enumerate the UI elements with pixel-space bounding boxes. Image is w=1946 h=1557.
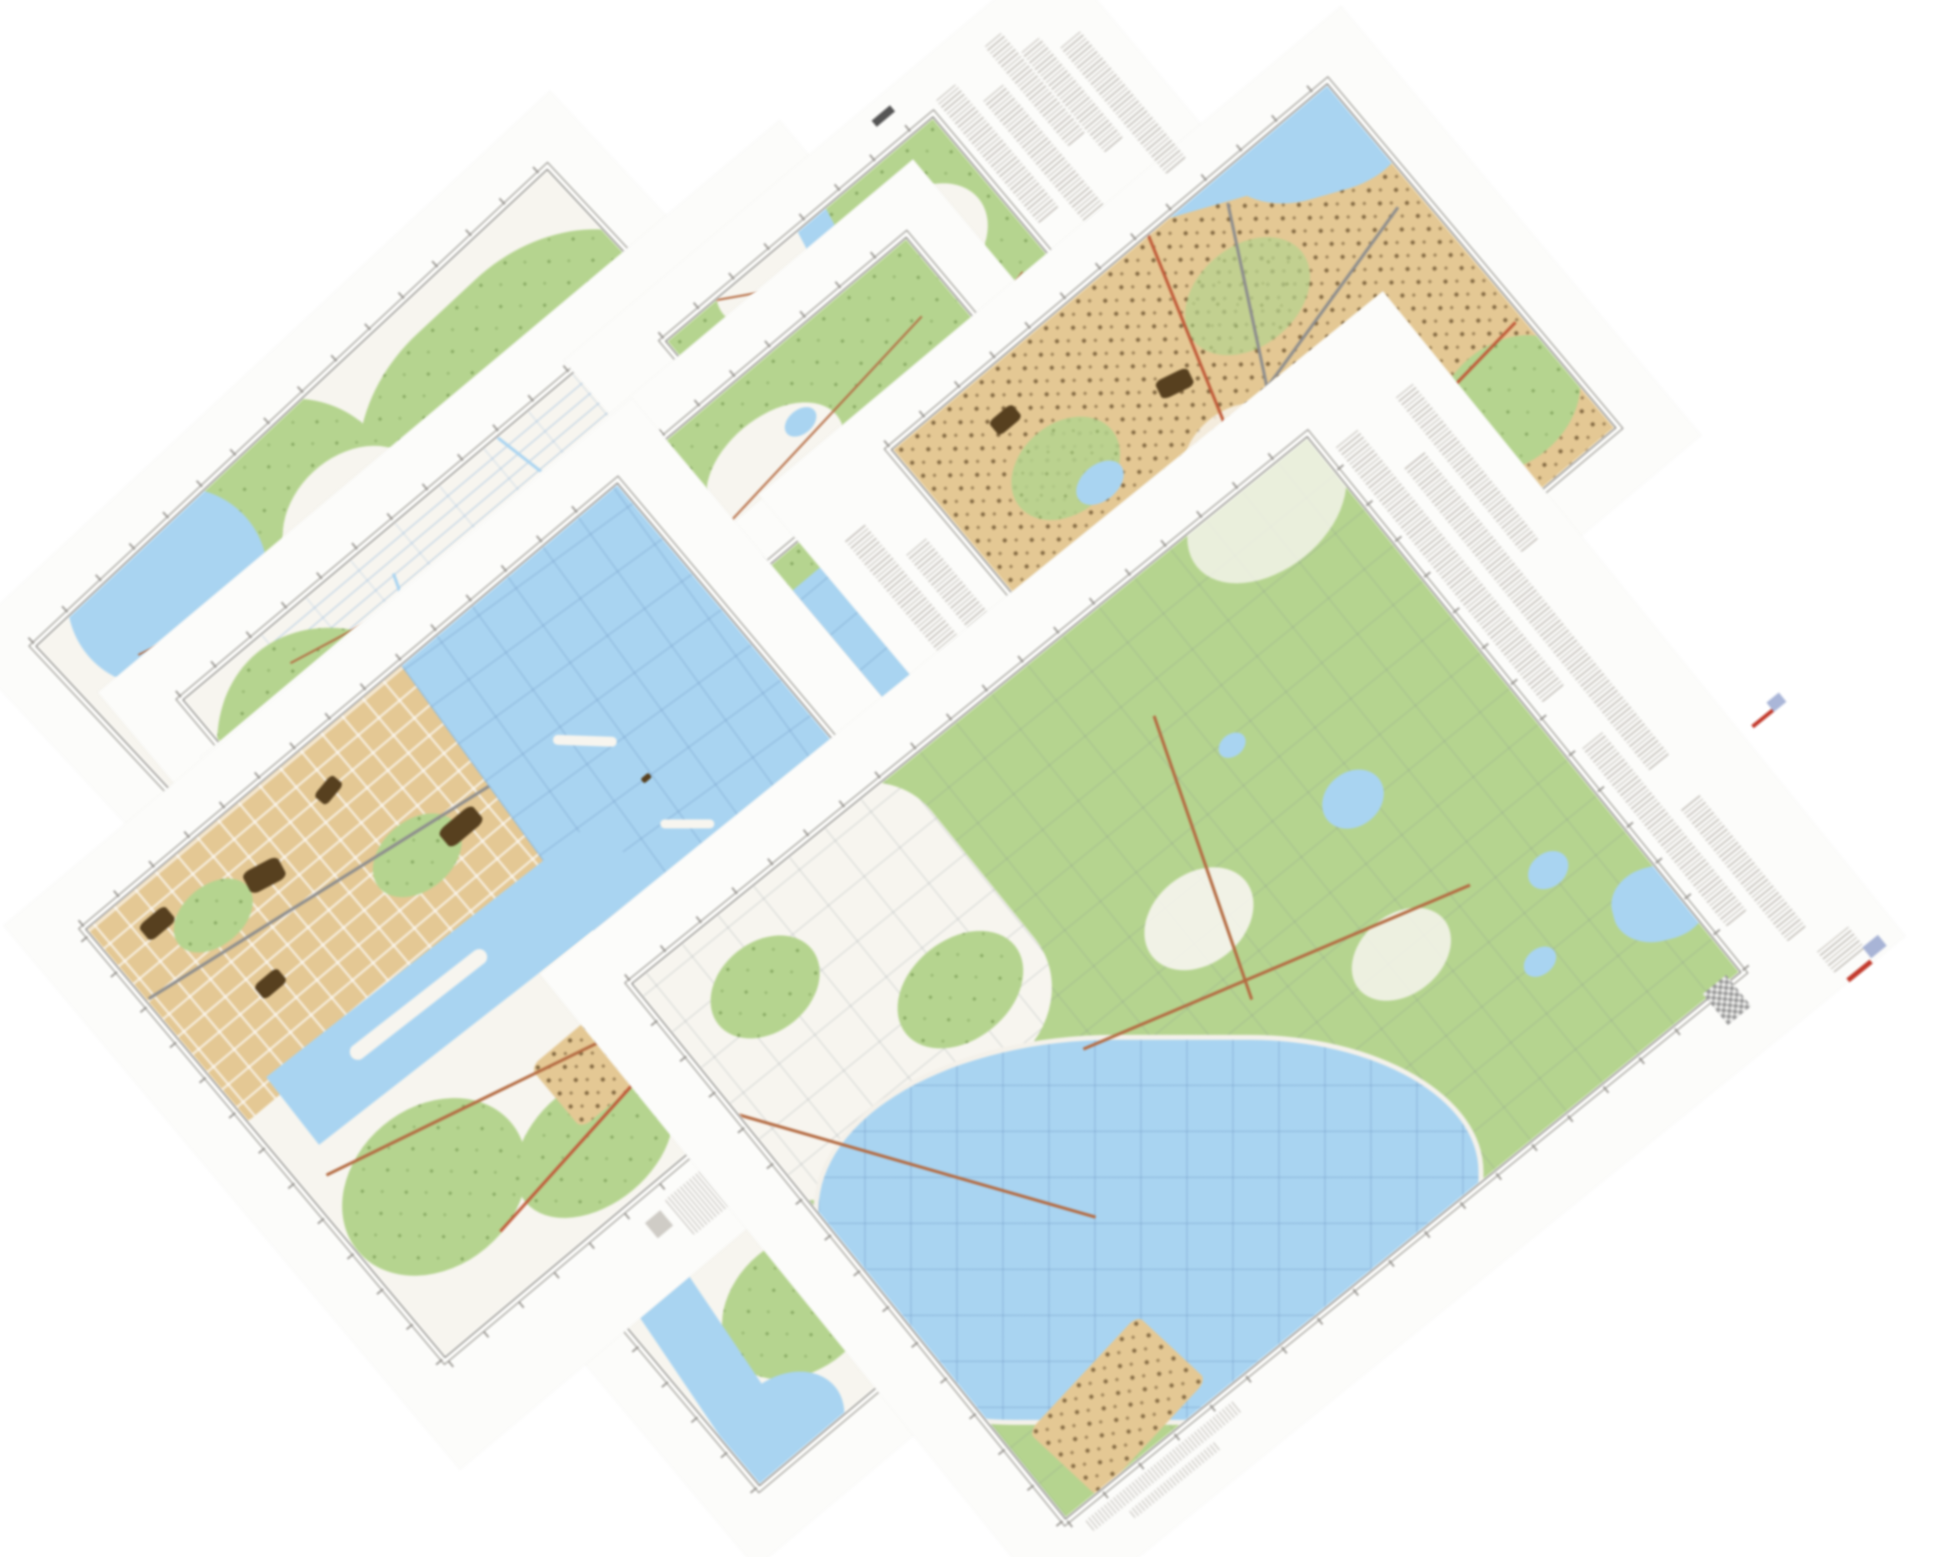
map-collage <box>0 0 1946 1557</box>
margin-diagram <box>645 1210 673 1238</box>
lake <box>1214 727 1251 763</box>
legend-color-mark <box>1744 687 1799 739</box>
lake <box>1520 843 1576 897</box>
sheet-designation-label <box>872 105 896 127</box>
red-mark <box>1846 960 1872 983</box>
round-lake <box>1310 757 1395 841</box>
red-mark <box>1751 709 1774 728</box>
industrial-block <box>1154 367 1195 401</box>
clearing <box>1333 889 1469 1020</box>
industrial-block <box>988 403 1023 436</box>
lake <box>1518 940 1562 983</box>
river <box>1202 86 1420 220</box>
ship <box>660 819 714 828</box>
blue-mark <box>1862 935 1886 958</box>
clearing <box>1124 846 1274 991</box>
